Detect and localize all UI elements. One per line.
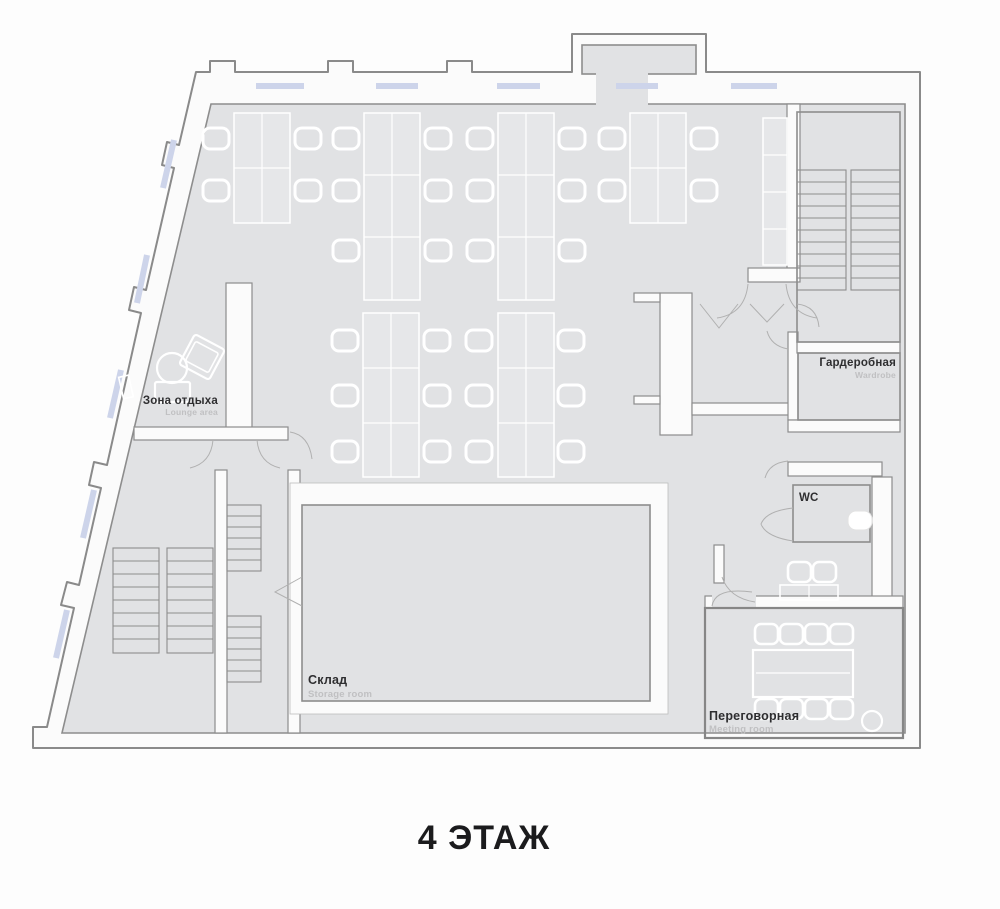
vestibule-opening xyxy=(596,72,648,107)
wardrobe-label-en: Wardrobe xyxy=(855,370,896,380)
floor-title: 4 ЭТАЖ xyxy=(418,819,550,857)
wall-below-wardrobe xyxy=(788,420,900,432)
wall-office-south xyxy=(134,427,288,440)
vestibule-floor xyxy=(582,45,696,74)
wall-shaft-stub-top xyxy=(634,293,660,302)
wall-shaft-stub-bottom xyxy=(634,396,660,404)
toilet-icon xyxy=(848,511,872,530)
wc-label: WC xyxy=(799,492,819,504)
desk-block xyxy=(498,313,554,477)
wall-wc-east xyxy=(872,477,892,605)
meeting-label-en: Meeting room xyxy=(709,724,774,735)
desk-block xyxy=(498,113,554,300)
wall-above-wc xyxy=(788,462,882,476)
wall-office-east xyxy=(787,104,800,268)
storage-floor xyxy=(302,505,650,701)
floor-plan-canvas: Зона отдыха Lounge area Гардеробная Ward… xyxy=(0,0,1000,909)
wall-shaft xyxy=(660,293,692,435)
desk-block xyxy=(763,118,787,265)
lounge-label-ru: Зона отдыха xyxy=(143,395,219,407)
floor-plan-page: Зона отдыха Lounge area Гардеробная Ward… xyxy=(0,0,1000,909)
wall-lounge xyxy=(226,283,252,430)
wall-office-east-return xyxy=(748,268,800,282)
storage-label-en: Storage room xyxy=(308,689,372,700)
wardrobe-label-ru: Гардеробная xyxy=(819,357,896,369)
storage-label-ru: Склад xyxy=(308,673,347,687)
desk-block xyxy=(234,113,290,223)
desk-block xyxy=(364,113,420,300)
wall-stairroom-south xyxy=(797,342,900,353)
desk-block xyxy=(630,113,686,223)
wall-stairhall xyxy=(215,470,227,733)
wall-hall-south xyxy=(692,403,792,415)
lounge-label-en: Lounge area xyxy=(165,407,218,417)
meeting-label-ru: Переговорная xyxy=(709,709,799,723)
desk-block xyxy=(363,313,419,477)
